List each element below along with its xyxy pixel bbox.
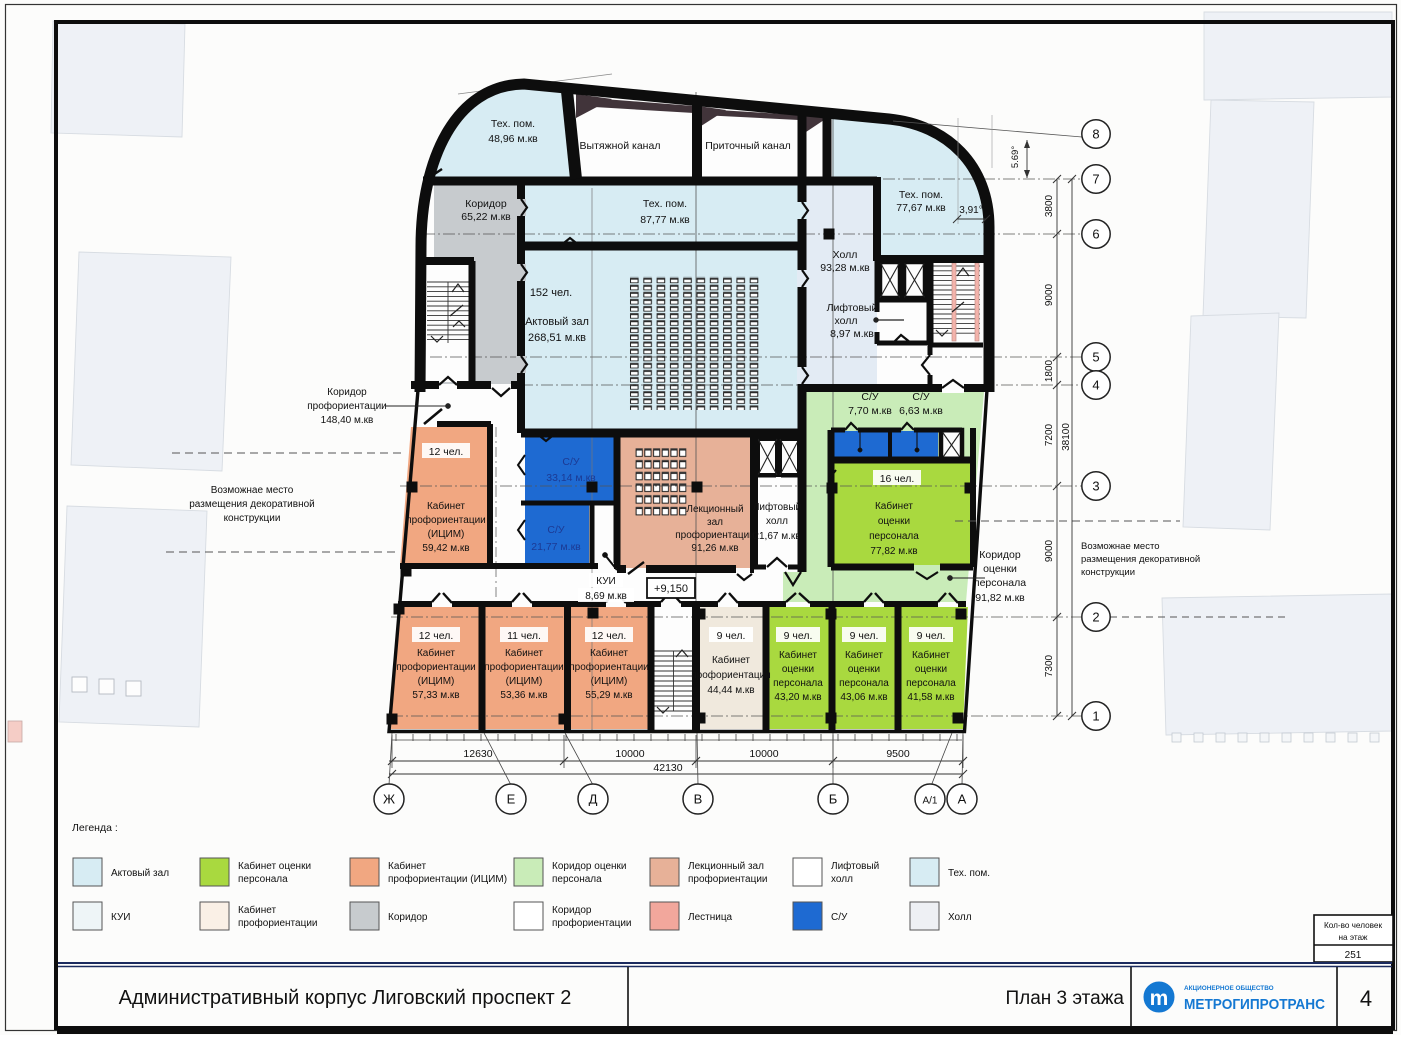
svg-text:Лекционный зал: Лекционный зал [688,861,764,872]
svg-text:8: 8 [1092,127,1099,142]
svg-text:148,40 м.кв: 148,40 м.кв [321,415,374,426]
svg-text:57,33 м.кв: 57,33 м.кв [412,690,459,701]
svg-text:Кабинет: Кабинет [427,500,465,512]
svg-text:8,97 м.кв: 8,97 м.кв [830,328,874,340]
svg-text:Кабинет: Кабинет [417,647,455,659]
svg-text:7200: 7200 [1044,423,1055,446]
svg-text:холл: холл [831,874,853,885]
svg-text:(ИЦИМ): (ИЦИМ) [418,676,455,687]
svg-text:9 чел.: 9 чел. [784,630,813,642]
svg-text:Холл: Холл [833,249,858,261]
svg-text:268,51 м.кв: 268,51 м.кв [528,332,586,344]
svg-text:1: 1 [1092,709,1099,724]
svg-text:С/У: С/У [547,524,565,536]
svg-text:12 чел.: 12 чел. [592,630,627,642]
svg-text:КУИ: КУИ [596,576,615,587]
svg-text:(ИЦИМ): (ИЦИМ) [591,676,628,687]
svg-text:3,91°: 3,91° [959,205,982,216]
svg-text:Кабинет: Кабинет [388,860,426,872]
svg-text:87,77 м.кв: 87,77 м.кв [640,214,690,226]
svg-text:Кабинет: Кабинет [590,647,628,659]
svg-text:Актовый зал: Актовый зал [111,868,169,879]
svg-text:77,67 м.кв: 77,67 м.кв [896,202,946,214]
svg-text:5.69°: 5.69° [1010,146,1021,168]
svg-text:профориентации: профориентации [552,917,632,929]
svg-text:Коридор: Коридор [388,912,428,923]
svg-text:Кабинет: Кабинет [238,904,276,916]
svg-text:Кабинет: Кабинет [912,649,950,661]
svg-text:оценки: оценки [915,664,947,675]
svg-text:персонала: персонала [839,678,889,689]
svg-text:Кабинет: Кабинет [779,649,817,661]
svg-text:Коридор: Коридор [327,387,367,398]
svg-text:МЕТРОГИПРОТРАНС: МЕТРОГИПРОТРАНС [1184,996,1325,1013]
svg-text:9 чел.: 9 чел. [717,630,746,642]
svg-text:профориентации: профориентации [691,669,771,681]
svg-text:21,77 м.кв: 21,77 м.кв [531,541,581,553]
svg-text:Кол-во человек: Кол-во человек [1324,921,1383,930]
svg-text:В: В [694,792,703,807]
svg-text:Тех. пом.: Тех. пом. [491,118,535,130]
svg-text:9000: 9000 [1044,539,1055,562]
svg-text:5: 5 [1092,350,1099,365]
svg-text:С/У: С/У [562,456,580,468]
svg-text:персонала: персонала [552,874,602,885]
svg-text:42130: 42130 [653,762,682,774]
svg-text:размещения декоративной: размещения декоративной [189,499,315,510]
svg-text:Коридор: Коридор [979,549,1021,561]
svg-text:21,67 м.кв: 21,67 м.кв [753,531,800,542]
svg-text:профориентации: профориентации [675,529,755,541]
svg-text:43,06 м.кв: 43,06 м.кв [840,692,887,703]
svg-text:Лекционный: Лекционный [686,504,743,515]
svg-text:1800: 1800 [1044,359,1055,382]
svg-text:профориентации (ИЦИМ): профориентации (ИЦИМ) [388,873,507,885]
svg-text:77,82 м.кв: 77,82 м.кв [870,546,917,557]
svg-text:Возможнае место: Возможнае место [211,485,294,496]
svg-text:Лифтовый: Лифтовый [827,302,878,314]
svg-text:конструкции: конструкции [224,513,281,524]
svg-text:Д: Д [589,792,598,807]
svg-text:холл: холл [835,315,858,327]
svg-text:С/У: С/У [861,391,879,403]
svg-text:КУИ: КУИ [111,912,130,923]
svg-text:12630: 12630 [463,748,492,760]
svg-text:профориентации: профориентации [484,661,564,673]
svg-text:профориентации: профориентации [396,661,476,673]
svg-text:персонала: персонала [974,577,1026,589]
svg-text:персонала: персонала [906,678,956,689]
svg-text:16 чел.: 16 чел. [880,473,915,485]
svg-text:АКЦИОНЕРНОЕ ОБЩЕСТВО: АКЦИОНЕРНОЕ ОБЩЕСТВО [1184,985,1274,992]
svg-text:С/У: С/У [912,391,930,403]
svg-text:персонала: персонала [773,678,823,689]
svg-text:59,42 м.кв: 59,42 м.кв [422,543,469,554]
svg-text:Лестница: Лестница [688,912,733,923]
svg-text:12 чел.: 12 чел. [419,630,454,642]
svg-text:Лифтовый: Лифтовый [831,860,879,872]
svg-text:размещения декоративной: размещения декоративной [1081,554,1200,565]
svg-text:Вытяжной канал: Вытяжной канал [580,140,661,152]
svg-text:3800: 3800 [1044,194,1055,217]
svg-text:48,96 м.кв: 48,96 м.кв [488,133,538,145]
svg-text:8,69 м.кв: 8,69 м.кв [585,591,627,602]
svg-text:Возможнае место: Возможнае место [1081,541,1159,552]
svg-text:(ИЦИМ): (ИЦИМ) [428,529,465,540]
svg-text:9 чел.: 9 чел. [917,630,946,642]
svg-text:93,28 м.кв: 93,28 м.кв [820,262,870,274]
svg-text:10000: 10000 [615,748,644,760]
svg-text:С/У: С/У [831,912,848,923]
svg-text:9500: 9500 [886,748,910,760]
svg-text:91,26 м.кв: 91,26 м.кв [691,543,738,554]
svg-text:6: 6 [1092,227,1099,242]
svg-text:холл: холл [766,516,788,527]
svg-text:зал: зал [707,517,723,528]
svg-text:11 чел.: 11 чел. [507,630,541,642]
svg-text:персонала: персонала [869,531,919,542]
svg-text:Кабинет: Кабинет [712,654,750,666]
svg-text:на этаж: на этаж [1338,933,1368,942]
svg-text:оценки: оценки [983,563,1017,575]
svg-text:Кабинет: Кабинет [845,649,883,661]
svg-text:38100: 38100 [1061,423,1072,451]
svg-text:Лифтовый: Лифтовый [753,501,801,513]
svg-text:(ИЦИМ): (ИЦИМ) [506,676,543,687]
svg-text:7,70 м.кв: 7,70 м.кв [848,405,892,417]
svg-text:12 чел.: 12 чел. [429,446,464,458]
svg-text:Тех. пом.: Тех. пом. [899,189,943,201]
svg-text:профориентации: профориентации [307,400,387,412]
svg-text:профориентации: профориентации [569,661,649,673]
svg-text:Актовый зал: Актовый зал [525,316,589,328]
svg-text:Кабинет: Кабинет [505,647,543,659]
svg-text:оценки: оценки [848,664,880,675]
svg-text:53,36 м.кв: 53,36 м.кв [500,690,547,701]
svg-text:Тех. пом.: Тех. пом. [643,198,687,210]
svg-text:Тех. пом.: Тех. пом. [948,868,990,879]
svg-text:251: 251 [1345,950,1362,961]
svg-text:профориентации: профориентации [238,917,318,929]
svg-text:конструкции: конструкции [1081,567,1135,578]
svg-text:Легенда :: Легенда : [72,822,118,834]
svg-text:4: 4 [1092,378,1099,393]
svg-text:Коридор оценки: Коридор оценки [552,861,627,872]
svg-text:55,29 м.кв: 55,29 м.кв [585,690,632,701]
svg-text:Е: Е [507,792,516,807]
svg-text:Б: Б [829,792,838,807]
svg-text:10000: 10000 [749,748,778,760]
svg-text:Приточный канал: Приточный канал [705,140,791,152]
svg-text:Коридор: Коридор [465,198,507,210]
svg-text:+9,150: +9,150 [654,583,688,595]
svg-text:3: 3 [1092,479,1099,494]
svg-text:7: 7 [1092,172,1099,187]
svg-text:Коридор: Коридор [552,905,592,916]
svg-text:профориентации: профориентации [688,873,768,885]
svg-text:43,20 м.кв: 43,20 м.кв [774,692,821,703]
svg-text:персонала: персонала [238,874,288,885]
svg-text:Кабинет: Кабинет [875,500,913,512]
svg-text:6,63 м.кв: 6,63 м.кв [899,405,943,417]
svg-text:Кабинет оценки: Кабинет оценки [238,860,311,872]
svg-text:профориентации: профориентации [406,514,486,526]
svg-text:33,14 м.кв: 33,14 м.кв [546,472,596,484]
svg-text:Административный корпус Лиговс: Административный корпус Лиговский проспе… [119,987,572,1009]
svg-text:План 3 этажа: План 3 этажа [1005,988,1124,1009]
svg-text:А: А [958,792,967,807]
svg-text:91,82 м.кв: 91,82 м.кв [975,592,1025,604]
svg-text:оценки: оценки [878,516,910,527]
svg-text:7300: 7300 [1044,654,1055,677]
svg-text:44,44 м.кв: 44,44 м.кв [707,685,754,696]
svg-text:Холл: Холл [948,912,972,923]
svg-text:оценки: оценки [782,664,814,675]
svg-text:65,22 м.кв: 65,22 м.кв [461,211,511,223]
svg-text:41,58 м.кв: 41,58 м.кв [907,692,954,703]
svg-text:2: 2 [1092,610,1099,625]
svg-text:9 чел.: 9 чел. [850,630,879,642]
svg-text:4: 4 [1360,986,1372,1011]
svg-text:m: m [1150,987,1169,1010]
svg-text:9000: 9000 [1044,283,1055,306]
svg-text:А/1: А/1 [922,796,937,807]
svg-text:152 чел.: 152 чел. [530,287,572,299]
svg-text:Ж: Ж [383,792,395,807]
